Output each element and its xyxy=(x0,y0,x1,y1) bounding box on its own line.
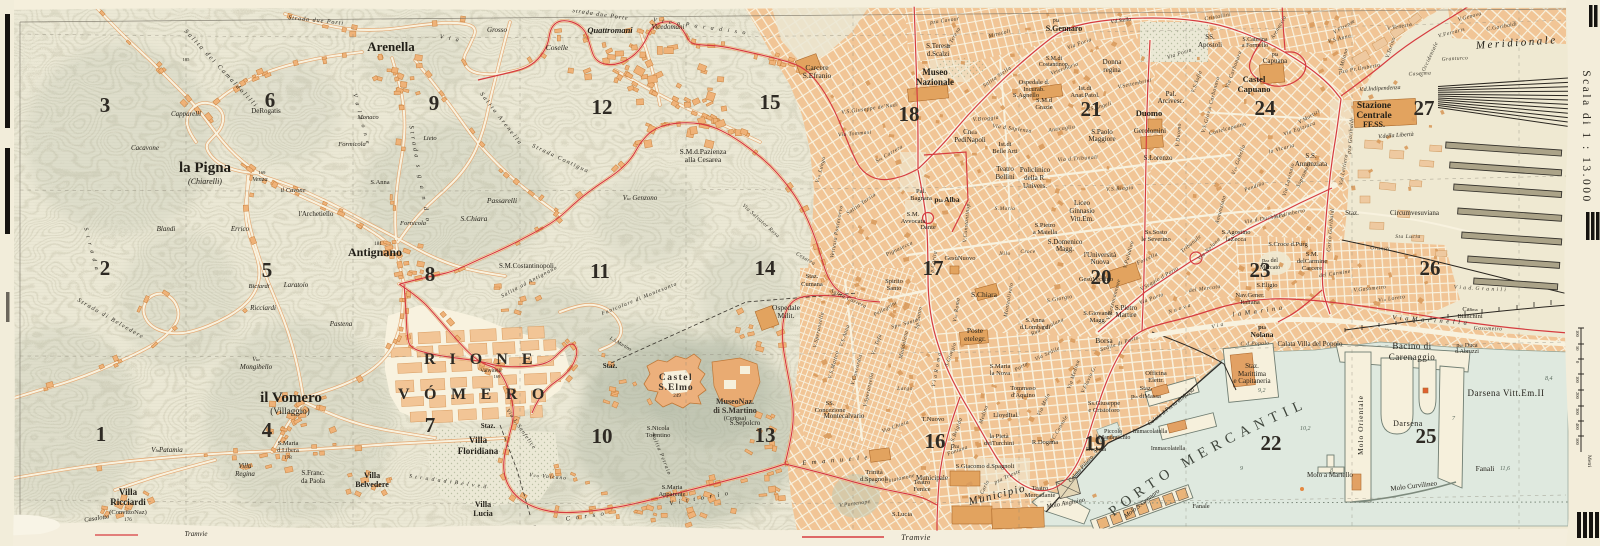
svg-text:RIONE: RIONE xyxy=(424,351,546,368)
svg-text:Circumvesuviana: Circumvesuviana xyxy=(1390,209,1440,217)
svg-text:Croce: Croce xyxy=(1020,249,1035,255)
svg-text:Bagnara: Bagnara xyxy=(910,195,932,202)
svg-text:Molo a Martello: Molo a Martello xyxy=(1307,471,1353,479)
svg-text:S.Lorenzo: S.Lorenzo xyxy=(1144,154,1173,162)
svg-text:Passarelli: Passarelli xyxy=(486,196,517,205)
svg-text:S.Anna: S.Anna xyxy=(370,179,389,186)
svg-text:le Severino: le Severino xyxy=(1141,236,1170,243)
svg-text:Tommaso: Tommaso xyxy=(1010,385,1036,392)
svg-text:500: 500 xyxy=(1575,438,1580,446)
svg-text:Italiana: Italiana xyxy=(1240,299,1260,306)
svg-text:T.Nuovo: T.Nuovo xyxy=(922,416,945,423)
svg-text:Apparente: Apparente xyxy=(658,491,685,498)
svg-text:100: 100 xyxy=(1575,330,1580,338)
svg-text:Quattromani: Quattromani xyxy=(587,25,633,35)
svg-text:Teatro: Teatro xyxy=(996,165,1014,173)
svg-text:Villa: Villa xyxy=(119,487,138,497)
svg-text:PediNapoli: PediNapoli xyxy=(954,136,986,144)
svg-text:Trinità: Trinità xyxy=(865,469,883,476)
svg-text:Arenella: Arenella xyxy=(367,39,415,54)
svg-text:S.Maria: S.Maria xyxy=(990,363,1011,370)
svg-text:18: 18 xyxy=(899,102,920,126)
svg-text:Sta Lucia: Sta Lucia xyxy=(1395,234,1420,240)
svg-text:Pal.: Pal. xyxy=(916,188,926,195)
svg-text:a Maiella: a Maiella xyxy=(1033,229,1057,236)
svg-text:Immacolatella: Immacolatella xyxy=(1133,429,1168,435)
svg-text:Capparelli: Capparelli xyxy=(171,110,201,118)
svg-text:Nav.Gener.: Nav.Gener. xyxy=(1235,292,1265,299)
svg-text:S.Gennaro: S.Gennaro xyxy=(1046,24,1083,33)
svg-text:S.Agostino: S.Agostino xyxy=(1221,229,1250,236)
svg-text:S.Chiara: S.Chiara xyxy=(461,214,488,223)
svg-text:da Paola: da Paola xyxy=(301,477,326,485)
svg-text:Immacolatella: Immacolatella xyxy=(1151,446,1186,452)
svg-text:Magg.: Magg. xyxy=(1090,317,1107,324)
svg-text:Tolentino: Tolentino xyxy=(646,432,671,439)
svg-text:10: 10 xyxy=(592,424,613,448)
svg-text:Vta Genzono: Vta Genzono xyxy=(623,194,658,202)
svg-text:GesùVecchio: GesùVecchio xyxy=(1079,276,1113,283)
svg-text:Nolana: Nolana xyxy=(1251,330,1274,339)
svg-text:Formicola: Formicola xyxy=(337,141,365,148)
svg-text:S.Pietro: S.Pietro xyxy=(1035,222,1056,229)
svg-text:400: 400 xyxy=(1575,423,1580,431)
svg-text:d.Abruzzi: d.Abruzzi xyxy=(1455,349,1479,355)
svg-text:la Pietà: la Pietà xyxy=(989,433,1008,440)
svg-text:S.Efranio: S.Efranio xyxy=(803,71,832,80)
svg-text:50: 50 xyxy=(1575,346,1580,351)
svg-text:Elettr.: Elettr. xyxy=(1148,377,1164,384)
svg-text:a Formello: a Formello xyxy=(1242,43,1268,49)
svg-text:Policlinico: Policlinico xyxy=(1020,166,1051,174)
svg-text:S.Maria: S.Maria xyxy=(278,440,299,447)
svg-text:Ist.di: Ist.di xyxy=(1078,85,1091,92)
svg-text:Apostoli: Apostoli xyxy=(1198,41,1222,49)
svg-text:Darsena Vitt.Em.II: Darsena Vitt.Em.II xyxy=(1467,388,1544,398)
svg-text:Concezione: Concezione xyxy=(815,407,846,414)
svg-text:15: 15 xyxy=(760,90,781,114)
svg-text:Mercadante: Mercadante xyxy=(1025,492,1056,499)
svg-text:27: 27 xyxy=(1414,96,1435,120)
svg-text:Museo: Museo xyxy=(922,67,948,77)
svg-text:Casma: Casma xyxy=(1462,306,1477,313)
svg-text:100: 100 xyxy=(1575,376,1580,384)
svg-text:Santo: Santo xyxy=(887,285,902,292)
svg-text:12: 12 xyxy=(592,95,613,119)
svg-text:regina: regina xyxy=(1103,66,1121,74)
svg-text:169: 169 xyxy=(494,374,502,379)
svg-text:Lucia: Lucia xyxy=(473,509,493,518)
svg-text:200: 200 xyxy=(1575,392,1580,400)
svg-text:Fanali: Fanali xyxy=(1476,464,1495,473)
svg-text:Ospedale d.: Ospedale d. xyxy=(1019,79,1050,86)
svg-text:Staz.: Staz. xyxy=(806,273,819,280)
svg-text:Milit.: Milit. xyxy=(778,311,795,320)
svg-text:11: 11 xyxy=(590,259,610,283)
svg-text:Laratoio: Laratoio xyxy=(283,281,309,289)
svg-text:C.d.Popolo: C.d.Popolo xyxy=(1240,340,1269,347)
svg-text:(Chiarelli): (Chiarelli) xyxy=(188,177,222,186)
svg-text:Pastena: Pastena xyxy=(329,320,353,328)
svg-text:Municipale: Municipale xyxy=(916,474,948,482)
svg-text:S.Maria: S.Maria xyxy=(995,206,1016,212)
svg-text:178: 178 xyxy=(284,456,292,461)
svg-text:Villa: Villa xyxy=(238,462,252,470)
svg-text:Lieto: Lieto xyxy=(422,135,437,142)
svg-text:S.Lucia: S.Lucia xyxy=(892,511,912,518)
svg-text:SS.: SS. xyxy=(1205,33,1215,41)
svg-text:S.Chiara: S.Chiara xyxy=(971,290,998,299)
svg-text:d'Aquino: d'Aquino xyxy=(1011,392,1035,399)
svg-text:pta diMassa: pta diMassa xyxy=(1131,393,1161,400)
svg-text:(Villaggio): (Villaggio) xyxy=(270,406,309,416)
svg-text:Darsena: Darsena xyxy=(1393,419,1423,428)
svg-text:Magg.: Magg. xyxy=(1056,245,1074,253)
svg-text:Caserma: Caserma xyxy=(1408,70,1431,77)
svg-text:Villa: Villa xyxy=(475,500,491,509)
svg-text:pza del: pza del xyxy=(1262,258,1278,264)
svg-text:Castel: Castel xyxy=(1243,74,1266,84)
svg-text:S.Elmo: S.Elmo xyxy=(658,383,693,393)
svg-text:pta Alba: pta Alba xyxy=(934,195,959,204)
svg-text:(ConvittoNaz): (ConvittoNaz) xyxy=(109,509,147,516)
svg-text:10,2: 10,2 xyxy=(1300,426,1311,432)
svg-text:S.M.: S.M. xyxy=(907,211,920,218)
svg-text:Mongibello: Mongibello xyxy=(239,363,273,371)
svg-text:Biciardi: Biciardi xyxy=(248,283,269,290)
svg-text:5: 5 xyxy=(262,258,273,282)
svg-text:S.Sepolcro: S.Sepolcro xyxy=(730,419,761,427)
svg-text:Grosso: Grosso xyxy=(487,26,507,34)
svg-text:S.Nicola: S.Nicola xyxy=(647,425,670,432)
svg-text:Capuana: Capuana xyxy=(1263,57,1288,65)
svg-text:Officina: Officina xyxy=(1145,370,1167,377)
svg-text:pta: pta xyxy=(1053,18,1060,24)
svg-text:Largo: Largo xyxy=(896,386,913,392)
svg-text:S.M.: S.M. xyxy=(1306,251,1319,258)
svg-text:Nazionale: Nazionale xyxy=(916,77,954,87)
svg-text:Capuano: Capuano xyxy=(1237,84,1270,94)
svg-text:Scala di 1 : 13.000: Scala di 1 : 13.000 xyxy=(1580,70,1592,203)
svg-text:Anat.Patol.: Anat.Patol. xyxy=(1070,92,1100,99)
svg-text:16: 16 xyxy=(925,429,946,453)
svg-text:Staz.: Staz. xyxy=(1245,362,1259,370)
svg-text:Vitt.Em.: Vitt.Em. xyxy=(1070,215,1094,223)
svg-text:S.Maria: S.Maria xyxy=(662,484,683,491)
svg-text:Cumana: Cumana xyxy=(801,281,823,288)
svg-text:2: 2 xyxy=(100,256,111,280)
svg-text:il Cavone: il Cavone xyxy=(280,187,305,194)
svg-text:Gasometro: Gasometro xyxy=(1474,326,1503,333)
svg-text:169: 169 xyxy=(259,170,267,175)
svg-text:Nuova: Nuova xyxy=(1091,258,1111,266)
svg-text:Gerolomini: Gerolomini xyxy=(1134,127,1166,135)
svg-text:Castel: Castel xyxy=(659,373,693,383)
svg-text:Donna: Donna xyxy=(1103,58,1123,66)
svg-text:Mercato: Mercato xyxy=(1260,265,1280,271)
svg-text:Fenice: Fenice xyxy=(913,486,930,493)
svg-text:S.Anna: S.Anna xyxy=(1025,317,1044,324)
svg-text:e Cristoforo: e Cristoforo xyxy=(1088,407,1119,414)
svg-text:1: 1 xyxy=(96,422,107,446)
svg-text:Duomo: Duomo xyxy=(1136,108,1162,118)
svg-text:Nilo: Nilo xyxy=(998,251,1010,257)
svg-text:S.Franc.: S.Franc. xyxy=(301,469,325,477)
svg-text:Antignano: Antignano xyxy=(348,245,402,259)
svg-text:Coselle: Coselle xyxy=(546,43,569,52)
svg-text:S.M.Costantinopoli: S.M.Costantinopoli xyxy=(499,262,554,270)
svg-text:Tramvie: Tramvie xyxy=(185,530,208,538)
svg-text:la Nova: la Nova xyxy=(990,370,1011,377)
svg-text:l'Archetiello: l'Archetiello xyxy=(299,210,334,218)
svg-text:Dante: Dante xyxy=(920,224,936,231)
svg-text:9,2: 9,2 xyxy=(1258,388,1266,394)
svg-text:GesùNuovo: GesùNuovo xyxy=(944,255,975,262)
svg-text:Bacino di: Bacino di xyxy=(1392,341,1431,351)
svg-text:d.Scalzi: d.Scalzi xyxy=(927,50,949,58)
svg-text:Regina: Regina xyxy=(234,470,255,478)
svg-text:300: 300 xyxy=(1575,408,1580,416)
svg-text:Ricciardi: Ricciardi xyxy=(110,497,146,507)
svg-text:S.Agnello: S.Agnello xyxy=(1013,92,1039,99)
svg-text:185: 185 xyxy=(183,57,191,62)
svg-text:9: 9 xyxy=(429,91,440,115)
svg-text:Staz.: Staz. xyxy=(481,422,496,430)
svg-text:Grazie: Grazie xyxy=(1035,104,1052,111)
svg-text:d.Libera: d.Libera xyxy=(277,447,299,454)
svg-text:delCarmine: delCarmine xyxy=(1297,258,1327,265)
svg-text:Cacavone: Cacavone xyxy=(131,144,159,152)
svg-text:Martire: Martire xyxy=(1116,311,1137,319)
svg-text:S.S.: S.S. xyxy=(1305,152,1317,160)
svg-text:14: 14 xyxy=(755,256,777,280)
svg-text:FF.SS.: FF.SS. xyxy=(1363,120,1385,129)
svg-text:di S.Martino: di S.Martino xyxy=(713,406,757,415)
svg-text:laZecca: laZecca xyxy=(1226,236,1246,243)
svg-text:Stazione: Stazione xyxy=(1357,101,1391,111)
svg-text:SS.: SS. xyxy=(826,400,835,407)
svg-text:Carcere: Carcere xyxy=(1302,265,1322,272)
svg-text:Dogana: Dogana xyxy=(1086,446,1106,453)
svg-text:VlaPatamia: VlaPatamia xyxy=(151,446,183,454)
svg-text:Calata Villa del Popolo: Calata Villa del Popolo xyxy=(1278,340,1343,348)
svg-text:S.Giacomo d.Spagnoli: S.Giacomo d.Spagnoli xyxy=(956,463,1015,470)
svg-text:9: 9 xyxy=(1240,466,1243,472)
svg-text:Fanale: Fanale xyxy=(1192,503,1209,510)
svg-text:3: 3 xyxy=(100,93,111,117)
svg-text:Bellini: Bellini xyxy=(995,173,1014,181)
svg-text:Maggiore: Maggiore xyxy=(1088,135,1115,143)
svg-text:della R.: della R. xyxy=(1024,174,1046,182)
svg-text:Villa: Villa xyxy=(364,471,380,480)
svg-text:Staz.: Staz. xyxy=(603,362,618,370)
svg-text:Univers.: Univers. xyxy=(1023,182,1047,190)
svg-text:Ss.Sosto: Ss.Sosto xyxy=(1145,229,1167,236)
svg-text:Belvedere: Belvedere xyxy=(355,480,389,489)
svg-text:Teatro: Teatro xyxy=(1032,485,1049,492)
svg-text:Ist.di: Ist.di xyxy=(998,141,1011,148)
svg-text:la Pigna: la Pigna xyxy=(179,160,232,176)
svg-text:l.Mandracchio: l.Mandracchio xyxy=(1096,435,1131,441)
svg-text:Fornicola: Fornicola xyxy=(399,220,426,227)
svg-text:Staz.: Staz. xyxy=(1345,209,1359,217)
svg-text:Ricciardi: Ricciardi xyxy=(249,304,276,312)
svg-text:etelegr.: etelegr. xyxy=(964,334,986,343)
svg-text:Staz.: Staz. xyxy=(1140,385,1153,392)
svg-text:il Vomero: il Vomero xyxy=(260,390,322,406)
svg-text:Molo Orientale: Molo Orientale xyxy=(1356,395,1365,455)
svg-text:alla Cesarea: alla Cesarea xyxy=(685,155,722,164)
svg-text:8,4: 8,4 xyxy=(1545,375,1553,382)
svg-text:Tramvie: Tramvie xyxy=(901,533,931,542)
svg-text:181: 181 xyxy=(374,242,382,247)
svg-text:176: 176 xyxy=(124,518,132,523)
svg-text:Spirito: Spirito xyxy=(885,278,903,285)
svg-text:MuseoNaz.: MuseoNaz. xyxy=(716,397,754,406)
svg-text:Errico: Errico xyxy=(230,225,250,233)
svg-text:22: 22 xyxy=(1261,431,1282,455)
svg-text:Villa: Villa xyxy=(469,435,488,445)
svg-text:Ss.Giuseppe: Ss.Giuseppe xyxy=(1088,400,1120,407)
svg-text:Floridiana: Floridiana xyxy=(458,446,499,456)
svg-text:VÓMERO: VÓMERO xyxy=(398,384,559,403)
svg-text:Belle Arti: Belle Arti xyxy=(992,148,1018,155)
svg-text:7: 7 xyxy=(425,413,436,437)
svg-text:e Capitaneria: e Capitaneria xyxy=(1233,377,1271,385)
svg-text:S.Eligio: S.Eligio xyxy=(1256,282,1277,289)
svg-text:249: 249 xyxy=(673,394,681,399)
svg-text:Venza: Venza xyxy=(252,176,267,183)
svg-text:24: 24 xyxy=(1255,96,1277,120)
svg-text:Ginnasio: Ginnasio xyxy=(1069,207,1095,215)
svg-text:Metri: Metri xyxy=(1586,455,1592,468)
svg-text:deiTurchini: deiTurchini xyxy=(984,440,1014,447)
svg-text:Liceo: Liceo xyxy=(1074,199,1090,207)
svg-text:Arcivesc.: Arcivesc. xyxy=(1158,97,1185,105)
svg-text:11,6: 11,6 xyxy=(1500,466,1510,472)
svg-text:LloydItal.: LloydItal. xyxy=(993,412,1019,419)
svg-text:S.Croce d.Purg: S.Croce d.Purg xyxy=(1268,241,1308,248)
svg-text:8: 8 xyxy=(425,262,436,286)
svg-text:26: 26 xyxy=(1420,256,1441,280)
svg-text:Carenaggio: Carenaggio xyxy=(1389,352,1435,362)
svg-text:Blandi: Blandi xyxy=(157,225,176,233)
svg-text:4: 4 xyxy=(262,418,273,442)
